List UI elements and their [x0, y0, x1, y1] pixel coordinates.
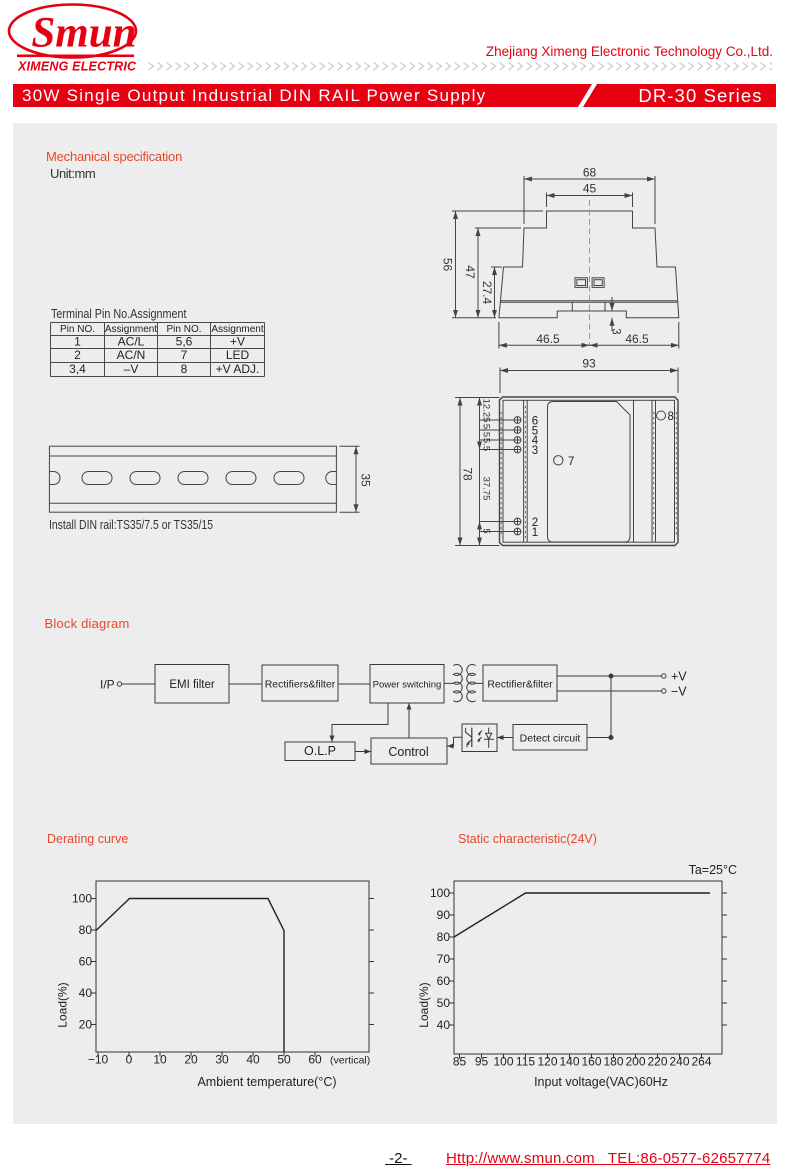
svg-text:−10: −10 [88, 1053, 109, 1067]
svg-text:5.5: 5.5 [481, 424, 492, 437]
svg-text:85: 85 [453, 1055, 467, 1069]
svg-text:60: 60 [437, 974, 451, 988]
svg-text:40: 40 [437, 1018, 451, 1032]
svg-text:2: 2 [74, 348, 81, 362]
svg-text:50: 50 [437, 996, 451, 1010]
svg-text:115: 115 [516, 1055, 535, 1069]
svg-text:Control: Control [388, 745, 428, 759]
svg-text:Assignment: Assignment [211, 324, 263, 335]
svg-text:35: 35 [359, 473, 373, 487]
svg-text:68: 68 [583, 166, 597, 180]
svg-text:46.5: 46.5 [536, 332, 560, 346]
svg-text:Load(%): Load(%) [56, 982, 70, 1027]
svg-text:EMI filter: EMI filter [169, 679, 215, 691]
svg-text:3: 3 [532, 445, 538, 457]
svg-text:Assignment: Assignment [105, 324, 157, 335]
svg-text:XIMENG ELECTRIC: XIMENG ELECTRIC [17, 60, 137, 74]
svg-text:264: 264 [691, 1055, 711, 1069]
svg-text:LED: LED [226, 348, 250, 362]
svg-text:Rectifiers&filter: Rectifiers&filter [265, 679, 336, 691]
svg-text:1: 1 [532, 527, 538, 539]
svg-text:+V: +V [671, 670, 687, 684]
svg-text:46.5: 46.5 [625, 332, 649, 346]
svg-text:Power switching: Power switching [373, 680, 442, 691]
svg-text:+V: +V [230, 335, 245, 349]
svg-text:O.L.P: O.L.P [304, 744, 336, 758]
svg-text:20: 20 [79, 1018, 93, 1032]
svg-text:100: 100 [493, 1055, 513, 1069]
svg-text:AC/N: AC/N [117, 348, 146, 362]
svg-text:30: 30 [215, 1053, 229, 1067]
svg-text:DR-30 Series: DR-30 Series [638, 85, 762, 106]
svg-text:I/P: I/P [100, 678, 115, 692]
svg-text:(vertical): (vertical) [330, 1055, 370, 1067]
svg-text:180: 180 [603, 1055, 623, 1069]
svg-text:7: 7 [181, 348, 188, 362]
svg-text:200: 200 [625, 1055, 645, 1069]
svg-text:10: 10 [153, 1053, 167, 1067]
svg-text:3,4: 3,4 [69, 362, 86, 376]
svg-text:93: 93 [582, 357, 596, 371]
svg-text:Pin NO.: Pin NO. [166, 324, 201, 335]
svg-text:Rectifier&filter: Rectifier&filter [487, 679, 553, 691]
svg-text:AC/L: AC/L [118, 335, 145, 349]
svg-text:3: 3 [610, 328, 622, 334]
svg-text:120: 120 [537, 1055, 557, 1069]
svg-text:7: 7 [568, 456, 574, 468]
svg-text:27.4: 27.4 [480, 281, 494, 305]
svg-text:60: 60 [79, 955, 93, 969]
svg-text:80: 80 [437, 930, 451, 944]
svg-text:70: 70 [437, 952, 451, 966]
svg-text:56: 56 [441, 258, 455, 272]
svg-text:30W Single Output Industrial D: 30W Single Output Industrial DIN RAIL Po… [22, 86, 486, 105]
svg-text:5: 5 [481, 528, 492, 533]
svg-text:100: 100 [72, 892, 92, 906]
svg-text:8: 8 [668, 411, 674, 423]
svg-text:40: 40 [246, 1053, 260, 1067]
svg-text:220: 220 [647, 1055, 667, 1069]
svg-text:95: 95 [475, 1055, 489, 1069]
svg-text:5,6: 5,6 [176, 335, 193, 349]
svg-text:+V ADJ.: +V ADJ. [216, 362, 260, 376]
svg-text:80: 80 [79, 923, 93, 937]
svg-text:Load(%): Load(%) [417, 982, 431, 1027]
svg-text:160: 160 [581, 1055, 601, 1069]
svg-text:37.75: 37.75 [481, 477, 492, 501]
svg-text:Pin NO.: Pin NO. [60, 324, 95, 335]
svg-text:Detect circuit: Detect circuit [520, 733, 581, 745]
svg-text:20: 20 [184, 1053, 198, 1067]
svg-text:Ambient temperature(°C): Ambient temperature(°C) [197, 1075, 336, 1089]
svg-text:12.25: 12.25 [481, 399, 492, 423]
svg-text:90: 90 [437, 908, 451, 922]
svg-text:240: 240 [669, 1055, 689, 1069]
svg-text:60: 60 [308, 1053, 322, 1067]
svg-text:100: 100 [430, 886, 450, 900]
svg-text:140: 140 [559, 1055, 579, 1069]
svg-text:Ta=25°C: Ta=25°C [689, 863, 737, 877]
svg-text:47: 47 [463, 265, 477, 279]
svg-text:5.5: 5.5 [481, 438, 492, 451]
svg-text:1: 1 [74, 335, 81, 349]
svg-text:0: 0 [126, 1053, 133, 1067]
svg-text:Input voltage(VAC)60Hz: Input voltage(VAC)60Hz [534, 1075, 668, 1089]
svg-text:−V: −V [671, 685, 687, 699]
svg-text:78: 78 [461, 467, 475, 481]
svg-text:50: 50 [277, 1053, 291, 1067]
svg-text:45: 45 [583, 182, 597, 196]
svg-text:–V: –V [124, 362, 139, 376]
svg-text:8: 8 [181, 362, 188, 376]
svg-text:40: 40 [79, 986, 93, 1000]
